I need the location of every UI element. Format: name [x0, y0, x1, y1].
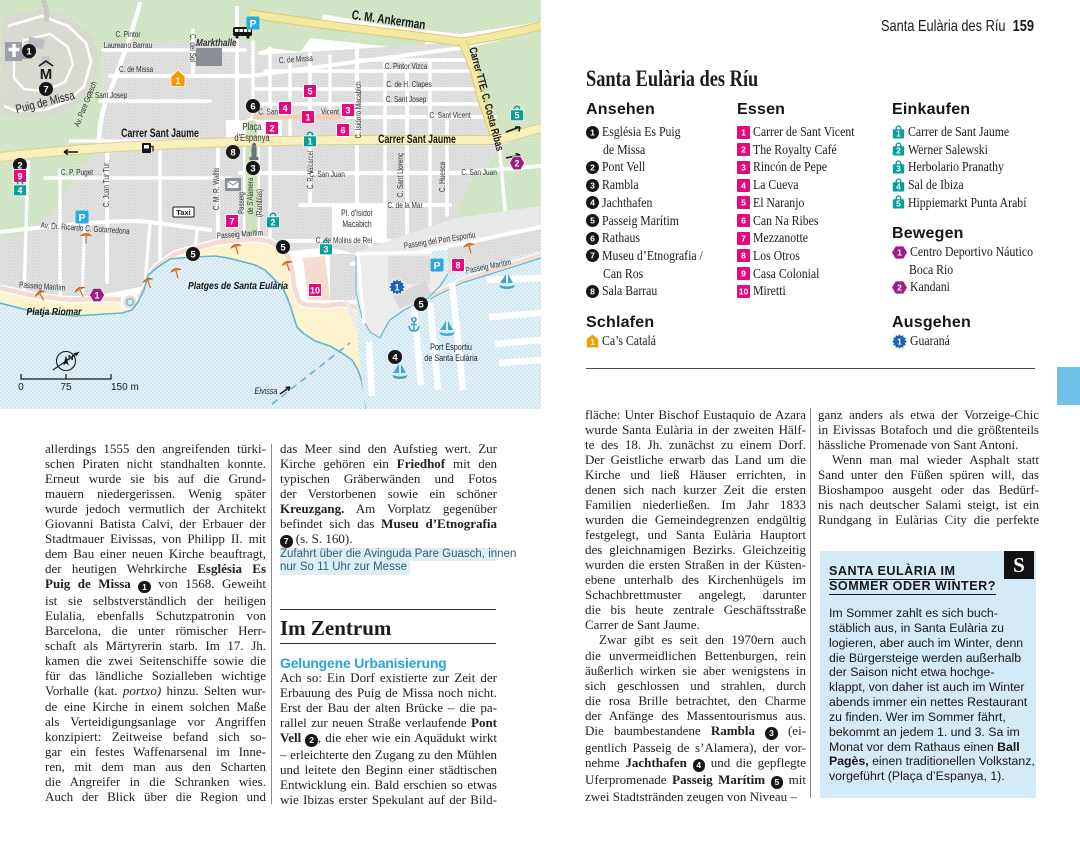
svg-text:2: 2 — [270, 218, 275, 228]
svg-text:C. Pintor: C. Pintor — [115, 29, 140, 39]
svg-text:5: 5 — [896, 199, 901, 209]
svg-text:6: 6 — [741, 216, 746, 226]
svg-text:1: 1 — [307, 137, 312, 147]
svg-text:2: 2 — [514, 158, 519, 168]
svg-text:150 m: 150 m — [111, 382, 139, 393]
svg-text:7: 7 — [590, 251, 595, 261]
svg-text:6: 6 — [340, 125, 345, 135]
svg-text:P: P — [433, 260, 440, 272]
svg-text:2: 2 — [590, 163, 595, 173]
svg-text:4: 4 — [896, 181, 901, 191]
svg-text:5: 5 — [741, 198, 746, 208]
svg-text:Platges de Santa Eulària: Platges de Santa Eulària — [188, 280, 288, 292]
svg-text:2: 2 — [741, 145, 746, 155]
svg-text:10: 10 — [739, 287, 749, 297]
svg-text:5: 5 — [514, 111, 519, 121]
svg-text:8: 8 — [230, 147, 235, 158]
svg-text:N: N — [68, 353, 73, 362]
svg-text:1: 1 — [175, 76, 180, 86]
svg-text:3: 3 — [896, 163, 901, 173]
svg-text:1: 1 — [896, 128, 901, 138]
svg-text:Carrer Sant Jaume: Carrer Sant Jaume — [121, 128, 199, 140]
svg-text:C. de Missa: C. de Missa — [119, 64, 153, 74]
svg-text:5: 5 — [280, 242, 286, 253]
svg-text:4: 4 — [590, 198, 595, 208]
svg-text:C. de la Mar: C. de la Mar — [387, 200, 422, 210]
svg-text:4: 4 — [741, 180, 746, 190]
svg-text:d'Espanya: d'Espanya — [234, 133, 270, 144]
svg-text:P: P — [249, 18, 256, 30]
svg-text:Plaça: Plaça — [243, 122, 262, 133]
svg-text:Port Esportiu: Port Esportiu — [430, 342, 472, 353]
svg-text:C. R. Valcarcel: C. R. Valcarcel — [306, 151, 315, 189]
svg-text:2: 2 — [897, 283, 902, 293]
svg-text:C. Huesca: C. Huesca — [437, 162, 447, 192]
svg-text:C. San Juan: C. San Juan — [461, 167, 497, 177]
svg-text:C. M. R. Wallis: C. M. R. Wallis — [211, 168, 221, 211]
svg-text:4: 4 — [392, 352, 398, 363]
svg-text:4: 4 — [17, 186, 22, 196]
svg-text:0: 0 — [18, 382, 24, 393]
svg-text:C. Sant Vicent: C. Sant Vicent — [429, 110, 471, 120]
svg-text:Taxi: Taxi — [176, 208, 190, 217]
svg-text:5: 5 — [418, 299, 424, 310]
svg-text:1: 1 — [897, 247, 902, 257]
svg-text:7: 7 — [229, 216, 234, 226]
svg-text:Macabich: Macabich — [342, 219, 371, 229]
svg-text:Markthalle: Markthalle — [196, 38, 237, 49]
svg-text:3: 3 — [741, 163, 746, 173]
svg-text:3: 3 — [323, 245, 328, 255]
svg-text:Vicent: Vicent — [321, 107, 339, 117]
svg-text:6: 6 — [250, 101, 255, 112]
svg-text:C. Sant Josep: C. Sant Josep — [386, 94, 427, 104]
svg-text:3: 3 — [345, 105, 350, 115]
svg-text:9: 9 — [741, 269, 746, 279]
svg-text:1: 1 — [94, 290, 99, 300]
svg-text:1: 1 — [590, 337, 595, 347]
svg-text:6: 6 — [590, 233, 595, 243]
svg-text:8: 8 — [741, 251, 746, 261]
svg-text:5: 5 — [190, 249, 196, 260]
svg-text:C. Juan Tur Tur: C. Juan Tur Tur — [101, 163, 111, 208]
svg-text:Carrer Sant Jaume: Carrer Sant Jaume — [378, 134, 456, 146]
svg-text:4: 4 — [282, 103, 287, 113]
svg-text:C. Pintor Vizca: C. Pintor Vizca — [385, 61, 428, 71]
svg-text:(Ramblas): (Ramblas) — [254, 189, 264, 217]
svg-text:1: 1 — [590, 127, 595, 137]
svg-text:Pl. d'Isidor: Pl. d'Isidor — [341, 208, 373, 218]
svg-text:8: 8 — [590, 287, 595, 297]
svg-text:1: 1 — [741, 127, 746, 137]
svg-text:7: 7 — [741, 233, 746, 243]
svg-text:9: 9 — [17, 171, 22, 181]
svg-text:1: 1 — [305, 112, 310, 122]
svg-text:de Santa Eulària: de Santa Eulària — [424, 353, 478, 364]
svg-text:C. Sant Llorenç: C. Sant Llorenç — [395, 152, 405, 197]
svg-text:75: 75 — [60, 382, 72, 393]
svg-text:3: 3 — [250, 163, 255, 174]
svg-text:5: 5 — [307, 86, 312, 96]
svg-text:2: 2 — [896, 146, 901, 156]
svg-text:10: 10 — [310, 285, 320, 295]
svg-text:1: 1 — [26, 46, 32, 57]
svg-text:5: 5 — [590, 216, 595, 226]
svg-text:M: M — [40, 66, 53, 83]
svg-text:Eivissa: Eivissa — [255, 386, 278, 397]
svg-text:C. Sant: C. Sant — [258, 107, 280, 117]
svg-text:2: 2 — [269, 123, 274, 133]
svg-text:1: 1 — [394, 282, 399, 292]
svg-text:8: 8 — [455, 260, 460, 270]
svg-text:C. del Sol: C. del Sol — [188, 34, 198, 62]
svg-text:Platja Riomar: Platja Riomar — [27, 306, 83, 318]
svg-text:C. P. Puget: C. P. Puget — [61, 167, 94, 177]
svg-text:7: 7 — [43, 84, 48, 95]
svg-text:3: 3 — [590, 180, 595, 190]
svg-text:Laureano Barrau: Laureano Barrau — [104, 40, 153, 50]
svg-text:1: 1 — [897, 336, 902, 346]
svg-text:C. de H. Clapes: C. de H. Clapes — [386, 79, 432, 89]
